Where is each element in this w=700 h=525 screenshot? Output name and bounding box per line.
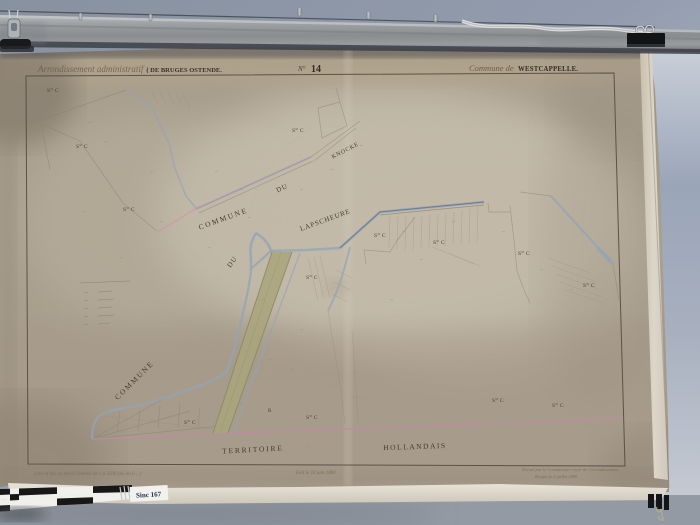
- svg-text:Commune de: Commune de: [469, 63, 514, 73]
- svg-text:14: 14: [311, 64, 321, 75]
- svg-text:So C: So C: [292, 126, 304, 134]
- svg-text:So C: So C: [552, 401, 564, 409]
- svg-text:So C: So C: [374, 231, 386, 239]
- svg-text:Fait le 24 juin 1880: Fait le 24 juin 1880: [295, 471, 336, 476]
- svg-text:Bruges le 2 juillet 1880: Bruges le 2 juillet 1880: [535, 474, 578, 479]
- svg-text:So C: So C: [518, 249, 530, 257]
- svg-text:N°: N°: [297, 65, 306, 73]
- svg-text:So C: So C: [47, 86, 59, 94]
- svg-text:So C: So C: [306, 273, 318, 281]
- svg-text:So C: So C: [492, 396, 504, 404]
- svg-text:So C: So C: [583, 281, 595, 289]
- svg-text:So C: So C: [184, 418, 196, 426]
- svg-text:Dressé par le Commissaire voye: Dressé par le Commissaire voyer de l'arr…: [521, 467, 619, 472]
- svg-text:{ DE BRUGES OSTENDE.: { DE BRUGES OSTENDE.: [146, 67, 222, 74]
- svg-text:Sinc 167: Sinc 167: [136, 490, 162, 499]
- svg-text:WESTCAPPELLE.: WESTCAPPELLE.: [518, 66, 578, 73]
- svg-text:So C: So C: [306, 413, 318, 421]
- svg-text:So C: So C: [123, 205, 135, 213]
- svg-text:So C: So C: [76, 142, 88, 150]
- svg-text:So C: So C: [433, 238, 445, 246]
- svg-text:Levé et mis au net à l'échelle: Levé et mis au net à l'échelle de 1 à 25…: [33, 472, 142, 477]
- svg-text:Arrondissement administratif: Arrondissement administratif: [37, 64, 145, 74]
